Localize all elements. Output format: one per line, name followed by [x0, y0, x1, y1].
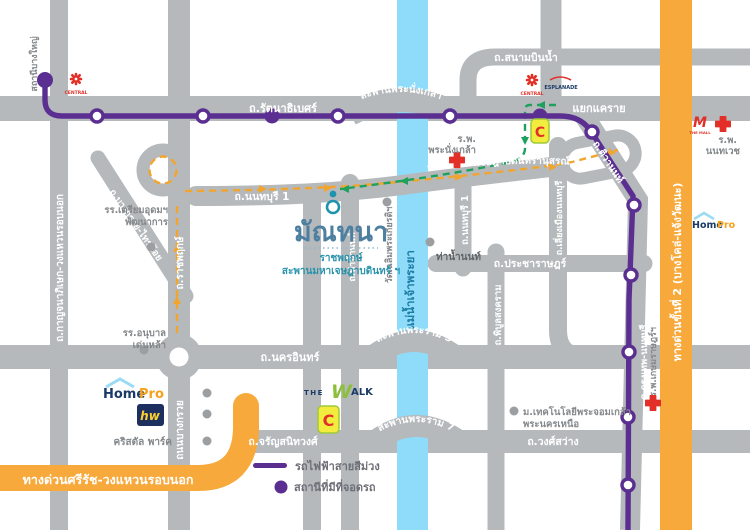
label-nonthaburi1-h: ถ.นนทบุรี 1 — [235, 190, 290, 204]
station — [586, 126, 598, 138]
project-sub1: ราชพฤกษ์ — [319, 252, 362, 264]
station — [625, 269, 637, 281]
svg-text:C: C — [535, 125, 545, 141]
svg-text:Pro: Pro — [717, 220, 736, 231]
label-rattanathibet: ถ.รัตนาธิเบศร์ — [249, 102, 317, 115]
kmutnb-l1: ม.เทคโนโลยีพระจอมเกล้า — [523, 406, 631, 418]
legend-station-swatch — [275, 481, 288, 494]
label-ratchaphruek: ถ.ราชพฤกษ์ — [174, 236, 186, 289]
legend-parking-label: สถานีที่มีที่จอดรถ — [294, 479, 376, 494]
hosp-phranangklao-l1: ร.พ. — [457, 134, 476, 145]
station — [91, 110, 103, 122]
logo-pin-dot-icon — [330, 191, 337, 198]
logo-pin-ring-icon — [327, 201, 339, 213]
svg-text:hw: hw — [140, 409, 161, 423]
svg-text:ALK: ALK — [351, 387, 374, 398]
school-triam-l1: รร.เตรียมอุดมฯ — [104, 204, 168, 216]
station — [444, 110, 456, 122]
svg-text:M: M — [693, 115, 707, 131]
crystal-park-label: คริสตัล พาร์ค — [113, 436, 172, 448]
school-triam-l2: พัฒนาการ — [125, 217, 169, 228]
station — [622, 479, 634, 491]
map-canvas: ถ.รัตนาธิเบศร์ แยกแคราย ถ.สนามบินน้ำ ถ.น… — [0, 0, 750, 530]
project-name: มัณทนา — [294, 217, 388, 248]
svg-text:W: W — [331, 381, 353, 403]
label-khae-rai: แยกแคราย — [572, 102, 625, 115]
roundabout-island — [170, 348, 189, 367]
hosp-nonthavej-l2: นนทเวช — [706, 146, 741, 157]
homepro-roof-icon — [106, 379, 134, 387]
central-label: CENTRAL — [64, 90, 87, 96]
tha-nam-non-pier-label: ท่าน้ำนนท์ — [436, 249, 481, 263]
bridge-rama5 — [376, 341, 452, 354]
label-phibunsongkhram: ถ.พิบูลสงคราม — [493, 285, 505, 346]
label-nonthaburi1-v: ถ.นนทบุรี 1 — [459, 195, 471, 245]
bridge-phranangklao — [350, 100, 456, 114]
poi-dot-wat-chalerm — [383, 198, 392, 207]
label-expressway-sirat: ทางด่วนศรีรัช-วงแหวนรอบนอก — [23, 472, 194, 487]
hosp-phranangklao-l2: พระนั่งเกล้า — [428, 142, 476, 156]
poi-dot-homeworks — [203, 410, 212, 419]
central-icon-2 — [527, 75, 537, 85]
station — [623, 346, 635, 358]
label-bang-kruai: ถนนบางกรวย — [175, 400, 186, 460]
station — [332, 110, 344, 122]
label-station-bang-yai: สถานีบางใหญ่ — [28, 36, 40, 92]
label-sanambinnam: ถ.สนามบินน้ำ — [494, 49, 558, 64]
central-label-2: CENTRAL — [520, 91, 543, 97]
bigc-icon-walk: C — [318, 406, 339, 433]
road-network — [0, 0, 750, 530]
school-anuban-l2: เด่นหล้า — [133, 339, 166, 351]
poi-dot-tha-nam-non — [426, 238, 435, 247]
kmutnb-l2: พระนครเหนือ — [523, 418, 579, 430]
legend-line-label: รถไฟฟ้าสายสีม่วง — [295, 459, 380, 473]
bigc-icon-khaerai: C — [531, 119, 549, 143]
label-wong-sawang: ถ.วงศ์สว่าง — [527, 435, 578, 448]
label-pracharat: ถ.ประชาราษฎร์ — [494, 257, 567, 270]
hosp-nonthavej-l1: ร.พ. — [718, 135, 737, 146]
svg-text:THE MALL: THE MALL — [689, 130, 711, 135]
poi-dot-kmutnb — [510, 407, 519, 416]
homepro-logo-left: Home Pro — [103, 379, 164, 402]
label-nakhon-in: ถ.นครอินทร์ — [261, 351, 320, 364]
homeworks-icon: hw — [137, 404, 164, 426]
svg-text:Pro: Pro — [139, 387, 164, 402]
label-kanchanaphisek: ถ.กาญจนาภิเษก-วงแหวนรอบนอก — [54, 194, 66, 342]
legend-line-swatch — [253, 463, 287, 468]
homepro-logo-right: Home Pro — [692, 213, 736, 231]
svg-text:THE: THE — [304, 389, 324, 397]
location-map: ถ.รัตนาธิเบศร์ แยกแคราย ถ.สนามบินน้ำ ถ.น… — [0, 0, 750, 530]
poi-dot-school-triam — [147, 243, 156, 252]
hosp-kasemrat-label: ร.พ.เกษมราษฎร์ฯ — [647, 327, 659, 397]
station — [197, 110, 209, 122]
poi-dot-crystal-park — [203, 437, 212, 446]
label-charansanitwong: ถ.จรัญสนิทวงศ์ — [248, 435, 318, 448]
project-sub2: สะพานมหาเจษฎาบดินทร์ ฯ — [282, 265, 401, 277]
label-river: แม่น้ำเจ้าพระยา — [401, 250, 417, 330]
esplanade-label: ESPLANADE — [544, 85, 578, 91]
school-anuban-l1: รร.อนุบาล — [123, 328, 166, 339]
homepro-roof-icon — [694, 213, 714, 219]
central-icon — [71, 74, 81, 84]
station — [628, 199, 640, 211]
svg-text:C: C — [323, 411, 335, 430]
label-expressway-stage2: ทางด่วนขั้นที่ 2 (บางโคล่-แจ้งวัฒนะ) — [669, 183, 684, 362]
poi-dot-homepro — [203, 389, 212, 398]
